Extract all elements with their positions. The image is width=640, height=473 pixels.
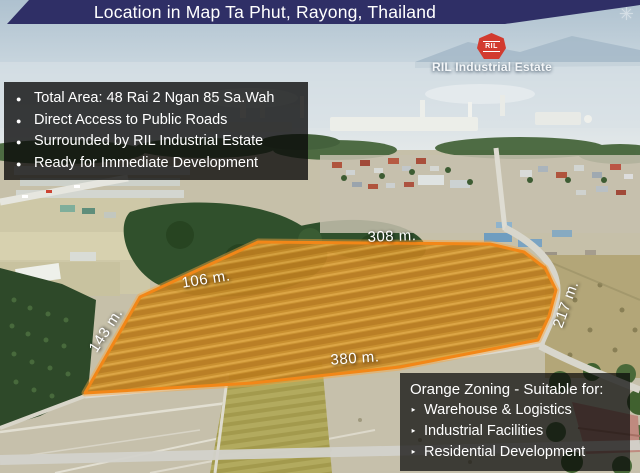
info-item-text: Total Area: 48 Rai 2 Ngan 85 Sa.Wah [34,88,274,109]
zoning-heading: Orange Zoning - Suitable for: [410,380,622,400]
zoning-item: ‣ Industrial Facilities [410,421,622,442]
zoning-item-text: Residential Development [424,442,585,462]
info-item: ● Surrounded by RIL Industrial Estate [16,131,302,153]
dimension-label-top: 308 m. [352,227,433,247]
page-title: Location in Map Ta Phut, Rayong, Thailan… [60,1,470,23]
arrow-bullet-icon: ‣ [410,443,424,463]
ril-monogram: RIL [483,41,500,52]
zoning-info-box: Orange Zoning - Suitable for: ‣ Warehous… [400,373,630,471]
ril-logo-caption: RIL Industrial Estate [428,60,556,74]
zoning-item: ‣ Warehouse & Logistics [410,400,622,421]
info-item-text: Direct Access to Public Roads [34,110,227,131]
bullet-icon: ● [16,89,34,110]
zoning-item-text: Warehouse & Logistics [424,400,572,420]
info-item-text: Ready for Immediate Development [34,153,258,174]
zoning-item: ‣ Residential Development [410,442,622,463]
bullet-icon: ● [16,154,34,175]
property-info-box: ● Total Area: 48 Rai 2 Ngan 85 Sa.Wah ● … [4,82,308,180]
zoning-item-text: Industrial Facilities [424,421,543,441]
bullet-icon: ● [16,132,34,153]
info-item: ● Ready for Immediate Development [16,153,302,175]
info-item-text: Surrounded by RIL Industrial Estate [34,131,263,152]
slide: Location in Map Ta Phut, Rayong, Thailan… [0,0,640,473]
info-item: ● Total Area: 48 Rai 2 Ngan 85 Sa.Wah [16,88,302,110]
info-item: ● Direct Access to Public Roads [16,110,302,132]
arrow-bullet-icon: ‣ [410,422,424,442]
bullet-icon: ● [16,111,34,132]
arrow-bullet-icon: ‣ [410,401,424,421]
